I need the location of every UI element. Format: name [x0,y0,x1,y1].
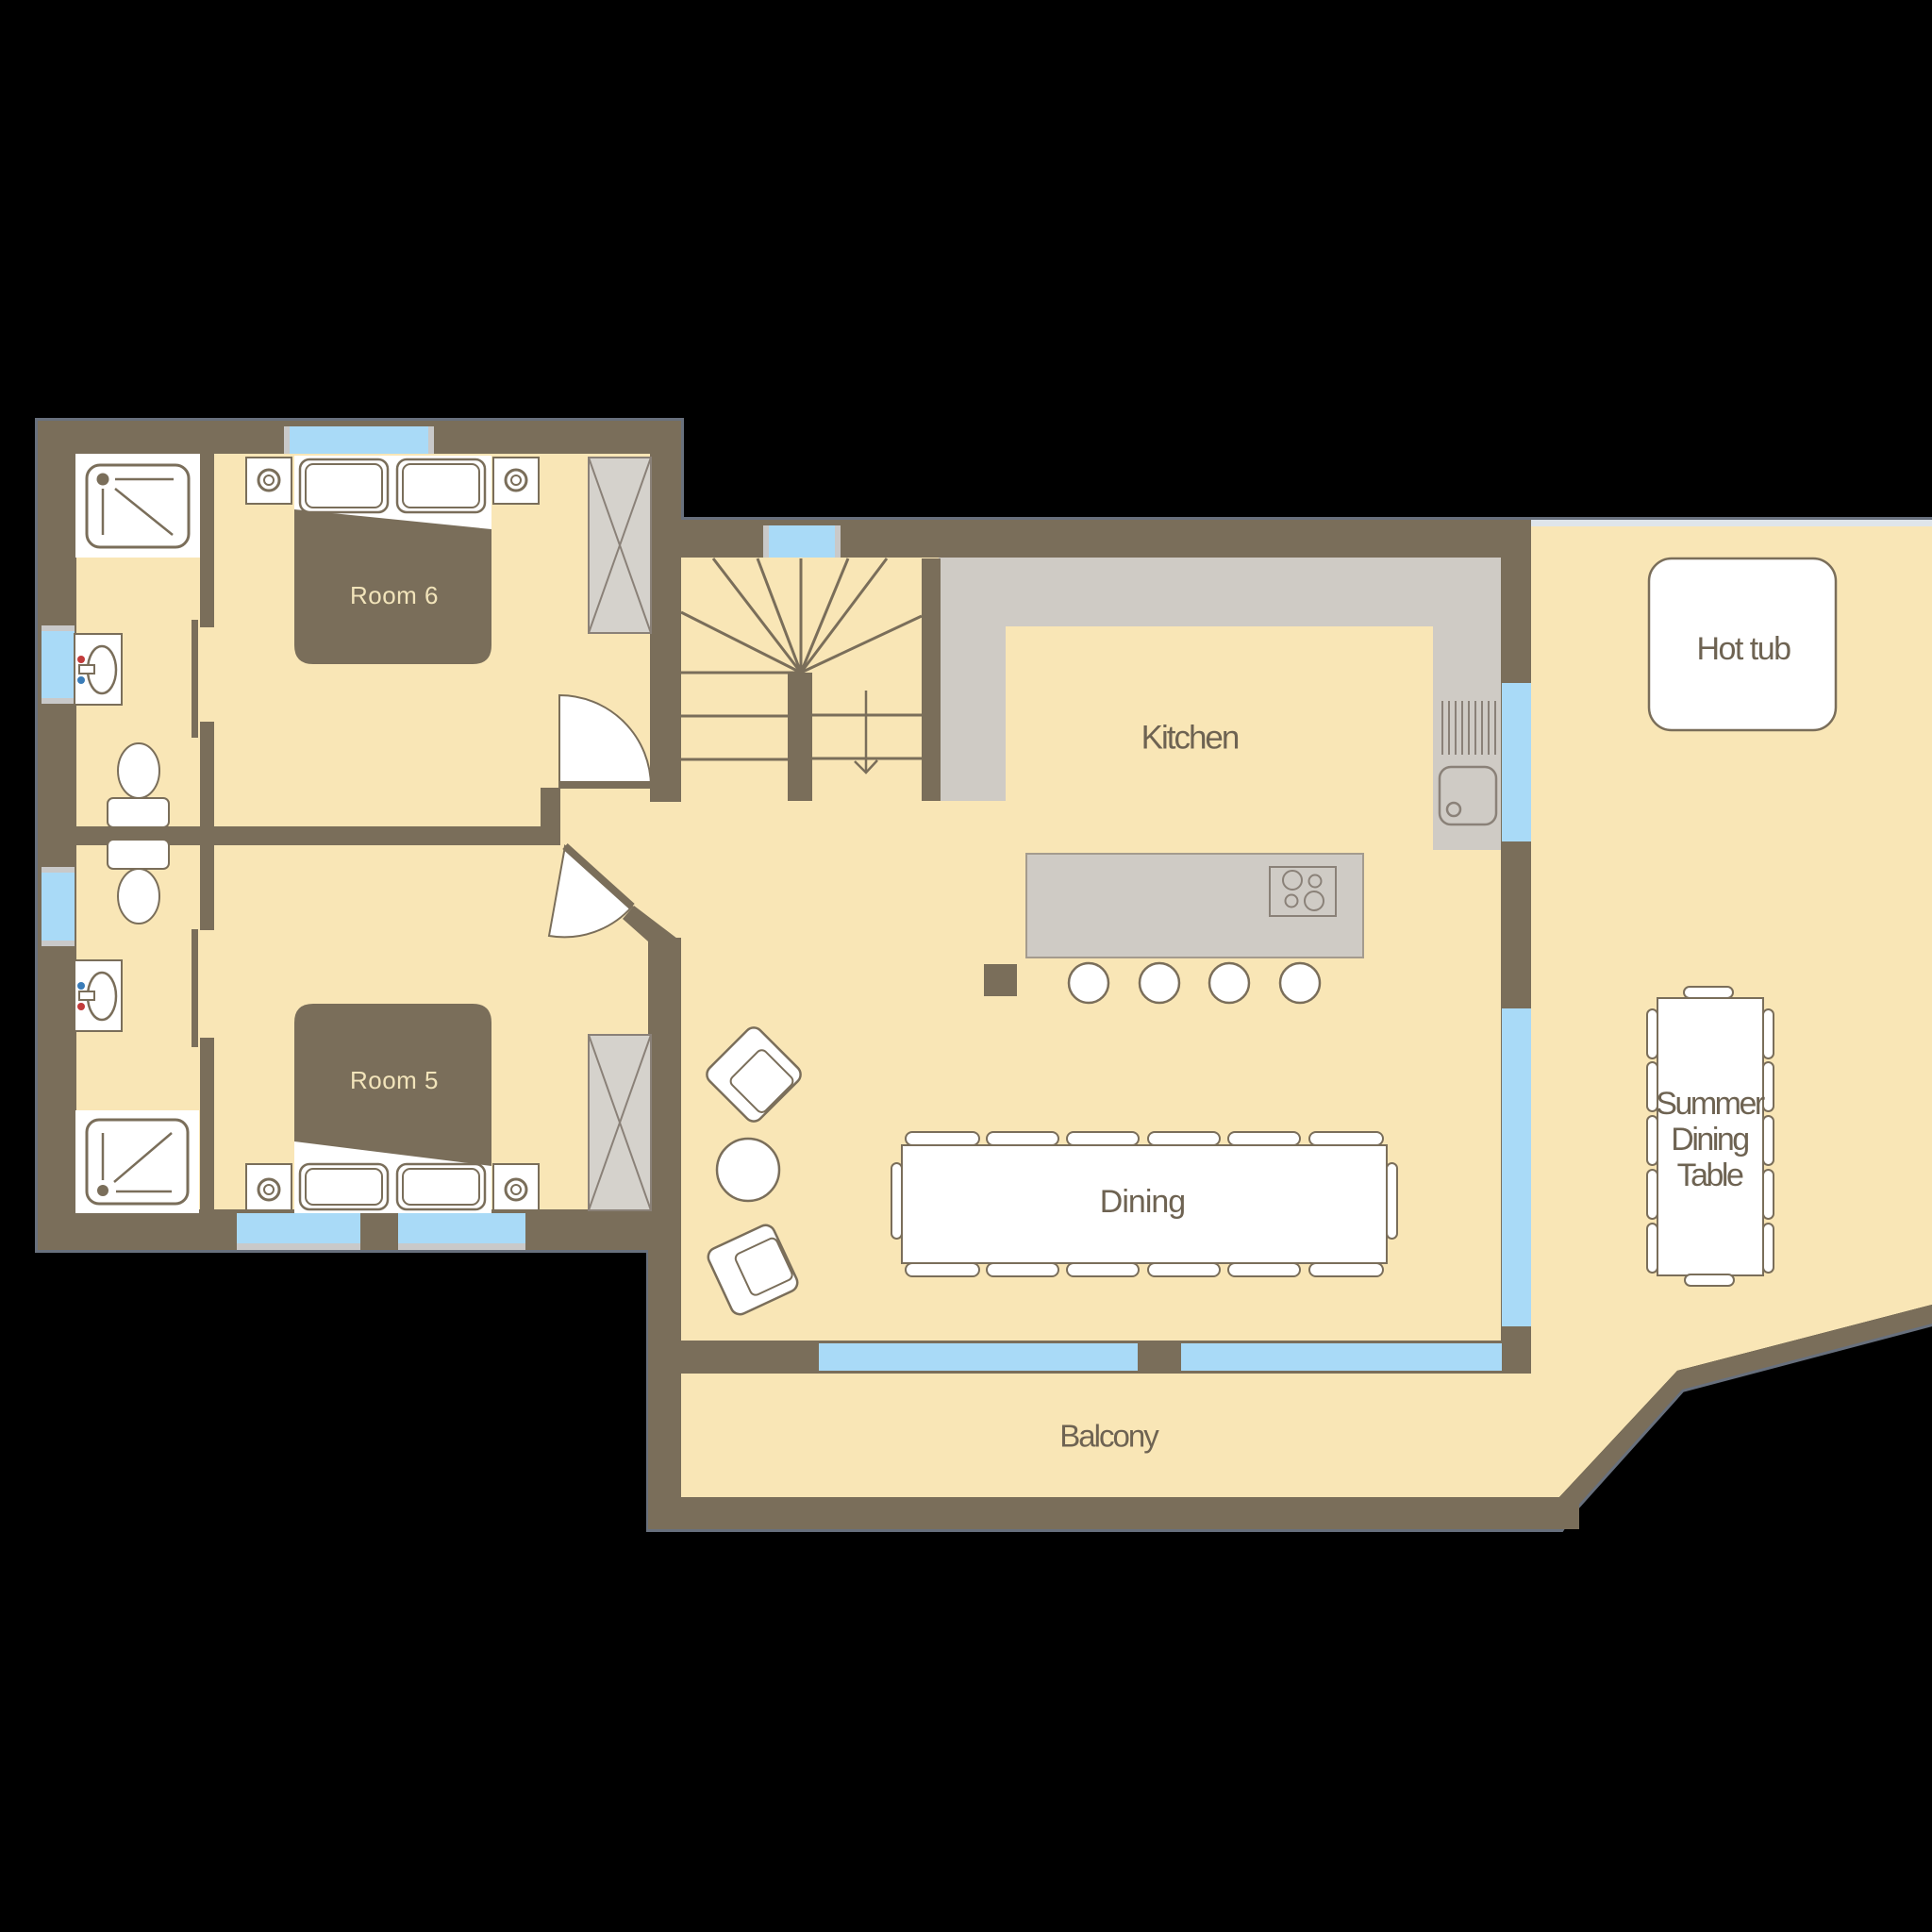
svg-text:Room 6: Room 6 [350,581,439,609]
svg-text:Table: Table [1677,1158,1743,1193]
svg-text:Dining: Dining [1100,1184,1185,1220]
svg-text:Hot tub: Hot tub [1696,631,1790,667]
svg-text:Balcony: Balcony [1059,1419,1159,1454]
svg-text:Room 5: Room 5 [350,1066,439,1094]
svg-text:Summer: Summer [1656,1086,1765,1122]
svg-text:Dining: Dining [1671,1122,1748,1158]
svg-text:Kitchen: Kitchen [1141,720,1239,757]
